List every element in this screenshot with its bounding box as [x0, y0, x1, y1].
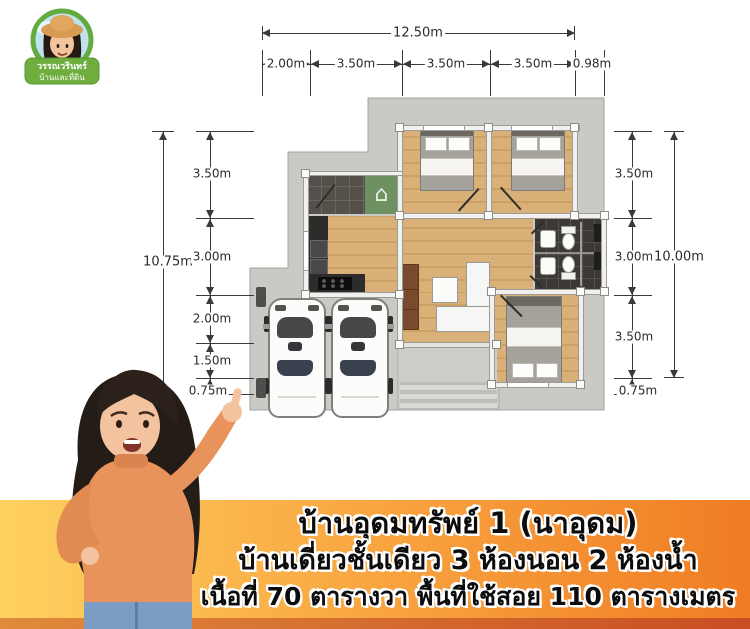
- sink: [540, 230, 556, 248]
- garden-patch: ⌂: [365, 175, 398, 214]
- dim-top-total: 12.50m: [391, 27, 445, 40]
- wall-post: [577, 288, 584, 295]
- wall-post: [485, 212, 492, 219]
- wall: [490, 290, 606, 294]
- dim-tick: [196, 343, 254, 344]
- wall: [573, 126, 577, 218]
- wall: [398, 214, 402, 297]
- presenter-woman: [8, 352, 264, 629]
- wall: [490, 290, 494, 387]
- dim-arrow: [206, 210, 214, 218]
- wall-post: [571, 212, 578, 219]
- wall-post: [302, 170, 309, 177]
- window: [512, 126, 552, 130]
- bathroom-partition: [580, 222, 582, 286]
- dim-tick: [664, 131, 684, 132]
- dim-arrow: [206, 296, 214, 304]
- dim-arrow: [628, 219, 636, 227]
- dim-left-seg: 3.00m: [191, 251, 233, 264]
- dim-arrow: [206, 219, 214, 227]
- wall-post: [485, 124, 492, 131]
- dim-tick: [262, 26, 263, 40]
- sink: [540, 257, 556, 275]
- dim-arrow: [482, 60, 490, 68]
- dim-arrow: [206, 287, 214, 295]
- dim-arrow: [262, 29, 270, 37]
- logo-brand-line2: บ้านและที่ดิน: [39, 71, 85, 82]
- dim-arrow: [311, 60, 319, 68]
- dim-arrow: [491, 60, 499, 68]
- window: [304, 232, 308, 270]
- dim-arrow: [628, 132, 636, 140]
- bathroom-divider: [535, 252, 602, 254]
- banner-subtitle: บ้านเดี่ยวชั้นเดียว 3 ห้องนอน 2 ห้องน้ำ: [190, 542, 746, 579]
- wall: [579, 290, 583, 387]
- wall-post: [302, 291, 309, 298]
- wall-post: [571, 124, 578, 131]
- window: [508, 383, 548, 387]
- car: [331, 298, 389, 418]
- house-icon: ⌂: [375, 182, 389, 207]
- dim-tick: [152, 131, 174, 132]
- dim-arrow: [670, 132, 678, 140]
- dim-right-seg: 3.50m: [613, 331, 655, 344]
- car: [268, 298, 326, 418]
- dim-arrow: [394, 60, 402, 68]
- wall-post: [577, 381, 584, 388]
- dim-right-seg: 3.00m: [613, 251, 655, 264]
- brand-logo: วรรณวรินทร์ บ้านและที่ดิน: [20, 6, 104, 86]
- dim-tick: [262, 50, 263, 96]
- dim-arrow: [403, 60, 411, 68]
- toilet: [561, 272, 576, 280]
- wall-post: [396, 291, 403, 298]
- dim-right-seg: 3.50m: [613, 168, 655, 181]
- coffee-table: [432, 277, 458, 303]
- terrace: [400, 347, 497, 382]
- dim-tick: [402, 50, 403, 96]
- dim-arrow: [628, 370, 636, 378]
- wall-post: [601, 212, 608, 219]
- dim-arrow: [206, 344, 214, 352]
- dim-top-seg: 3.50m: [512, 58, 554, 71]
- dim-right-seg: 0.75m: [617, 385, 659, 398]
- dim-top-seg: 3.50m: [335, 58, 377, 71]
- dim-arrow: [206, 335, 214, 343]
- wall: [398, 293, 402, 347]
- logo-brand-line1: วรรณวรินทร์: [37, 60, 87, 72]
- tv-cabinet: [401, 264, 419, 330]
- dim-tick: [490, 50, 491, 96]
- dim-tick: [196, 218, 254, 219]
- kitchen-appliance: [310, 240, 328, 258]
- wall-post: [493, 341, 500, 348]
- dim-arrow: [628, 287, 636, 295]
- dim-arrow: [628, 296, 636, 304]
- dim-tick: [196, 295, 254, 296]
- wall: [304, 293, 402, 297]
- toilet: [562, 256, 575, 273]
- dim-top-seg: 0.98m: [571, 58, 613, 71]
- wall-post: [488, 381, 495, 388]
- dim-tick: [196, 131, 254, 132]
- dim-arrow: [206, 132, 214, 140]
- bed: [420, 129, 474, 191]
- bed: [511, 129, 565, 191]
- wall: [487, 126, 491, 218]
- banner-area-info: เนื้อที่ 70 ตารางวา พื้นที่ใช้สอย 110 ตา…: [190, 579, 746, 615]
- water-heater: [594, 224, 601, 242]
- dim-arrow: [159, 132, 167, 140]
- terrace-steps: [400, 382, 497, 408]
- wall-post: [601, 288, 608, 295]
- wall-post: [396, 212, 403, 219]
- dim-right-total: 10.00m: [652, 251, 706, 264]
- wall: [304, 172, 402, 175]
- banner-text-block: บ้านอุดมทรัพย์ 1 (นาอุดม) บ้านเดี่ยวชั้น…: [190, 505, 746, 615]
- dim-tick: [310, 50, 311, 96]
- dim-top-seg: 2.00m: [265, 58, 307, 71]
- window: [424, 126, 464, 130]
- dim-tick: [574, 26, 575, 40]
- stove: [318, 277, 352, 290]
- banner-title: บ้านอุดมทรัพย์ 1 (นาอุดม): [190, 505, 746, 542]
- wall: [602, 214, 606, 294]
- dim-left-seg: 2.00m: [191, 313, 233, 326]
- wall-sliding-door: [398, 343, 499, 347]
- logo-hat-top: [50, 15, 74, 31]
- wall-post: [396, 341, 403, 348]
- wall-post: [396, 124, 403, 131]
- toilet: [562, 233, 575, 250]
- wall-post: [488, 288, 495, 295]
- water-heater: [594, 252, 601, 270]
- dim-left-seg: 3.50m: [191, 168, 233, 181]
- dim-arrow: [628, 210, 636, 218]
- dim-tick: [664, 377, 684, 378]
- dim-left-total: 10.75m: [141, 256, 195, 269]
- sofa: [436, 306, 490, 332]
- dim-top-seg: 3.50m: [425, 58, 467, 71]
- door-mat: [256, 287, 266, 307]
